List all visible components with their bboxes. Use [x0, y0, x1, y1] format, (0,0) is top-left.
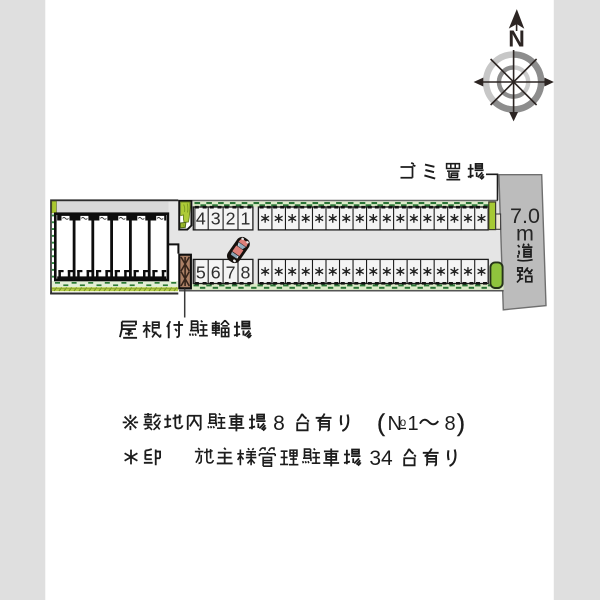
svg-text:34: 34: [369, 447, 393, 470]
svg-text:4: 4: [196, 209, 206, 229]
svg-text:): ): [457, 410, 465, 437]
svg-text:1: 1: [408, 413, 419, 435]
svg-text:6: 6: [211, 262, 221, 282]
svg-text:2: 2: [226, 209, 236, 229]
svg-text:1: 1: [241, 209, 251, 229]
svg-text:(: (: [377, 410, 385, 437]
svg-text:8: 8: [273, 412, 285, 435]
svg-text:8: 8: [444, 413, 455, 435]
svg-text:8: 8: [241, 262, 251, 282]
svg-text:N: N: [508, 26, 525, 52]
svg-text:m: m: [516, 222, 534, 246]
svg-text:5: 5: [196, 262, 206, 282]
svg-text:7: 7: [226, 262, 236, 282]
svg-text:3: 3: [211, 209, 221, 229]
svg-text:o: o: [400, 417, 406, 429]
